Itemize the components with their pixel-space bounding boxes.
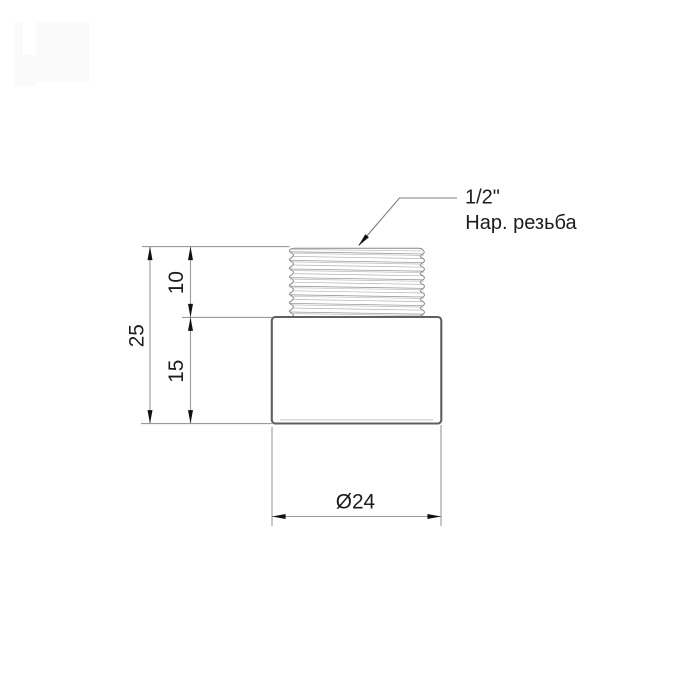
svg-text:Нар. резьба: Нар. резьба bbox=[465, 212, 577, 234]
svg-text:1/2": 1/2" bbox=[465, 187, 500, 209]
svg-text:Ø24: Ø24 bbox=[336, 490, 375, 513]
svg-text:10: 10 bbox=[165, 271, 188, 294]
svg-text:15: 15 bbox=[165, 360, 188, 383]
svg-text:25: 25 bbox=[126, 324, 149, 347]
